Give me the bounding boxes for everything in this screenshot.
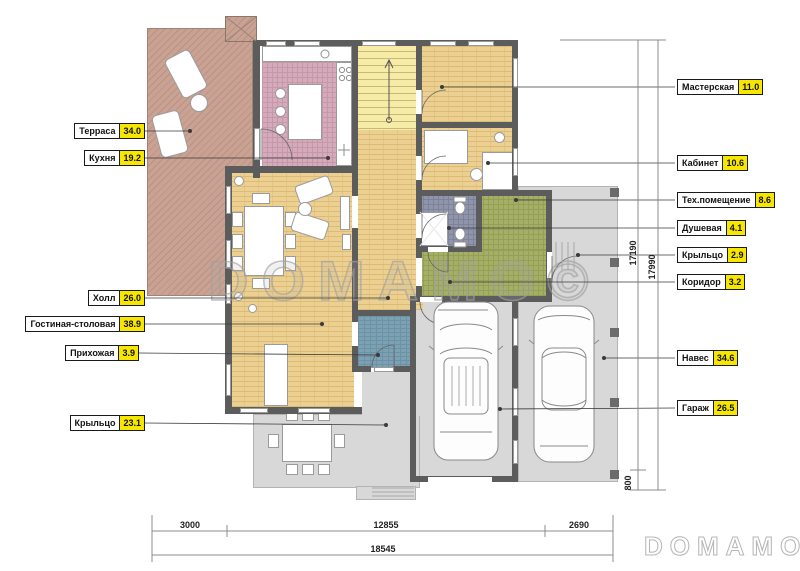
- room-label: Холл: [88, 290, 121, 306]
- toilet: [454, 197, 466, 247]
- callout-workshop: Мастерская11.0: [677, 79, 763, 95]
- area-value: 4.1: [727, 220, 747, 236]
- room-label: Крыльцо: [677, 247, 728, 263]
- callout-study: Кабинет10.6: [677, 155, 748, 171]
- room-label: Коридор: [677, 274, 726, 290]
- dim-18545: 18545: [370, 544, 395, 554]
- domamo-logo: DOMAMO: [644, 531, 800, 562]
- dim-2690: 2690: [569, 520, 589, 530]
- callout-terrace: Терраса34.0: [74, 123, 145, 139]
- door-arcs: [261, 90, 578, 367]
- callout-garage: Гараж26.5: [677, 400, 738, 416]
- callout-shower: Душевая4.1: [677, 220, 746, 236]
- room-label: Мастерская: [677, 79, 739, 95]
- room-label: Терраса: [74, 123, 120, 139]
- room-label: Кабинет: [677, 155, 723, 171]
- area-value: 26.0: [120, 290, 145, 306]
- suv-car: [429, 302, 503, 460]
- room-label: Кухня: [84, 150, 120, 166]
- dim-3000: 3000: [180, 520, 200, 530]
- area-value: 10.6: [723, 155, 748, 171]
- room-label: Душевая: [677, 220, 727, 236]
- callout-entry: Прихожая3.9: [65, 345, 139, 361]
- dim-800: 800: [623, 463, 633, 503]
- dim-12855: 12855: [373, 520, 398, 530]
- callout-porch-main: Крыльцо23.1: [70, 415, 146, 431]
- leader-lines: [139, 85, 675, 426]
- dimension-lines: [152, 40, 666, 562]
- floor-plan-image: DOMAMO©: [0, 0, 800, 571]
- area-value: 38.9: [120, 316, 145, 332]
- callout-hall: Холл26.0: [88, 290, 145, 306]
- sedan-car: [529, 306, 599, 462]
- dim-17190: 17190: [628, 233, 638, 273]
- area-value: 3.9: [119, 345, 139, 361]
- area-value: 3.2: [726, 274, 746, 290]
- kitchen-fixtures: [321, 50, 352, 156]
- stairs-direction-arrow: [385, 60, 393, 123]
- dim-17990: 17990: [647, 247, 657, 287]
- callout-living-dining: Гостиная-столовая38.9: [25, 316, 145, 332]
- area-value: 8.6: [756, 192, 776, 208]
- callout-corridor: Коридор3.2: [677, 274, 745, 290]
- callout-tech-room: Тех.помещение8.6: [677, 192, 775, 208]
- room-label: Гостиная-столовая: [25, 316, 120, 332]
- area-value: 19.2: [120, 150, 145, 166]
- room-label: Крыльцо: [70, 415, 121, 431]
- callout-canopy: Навес34.6: [677, 350, 738, 366]
- callout-porch-small: Крыльцо2.9: [677, 247, 747, 263]
- area-value: 34.6: [714, 350, 739, 366]
- room-label: Прихожая: [65, 345, 119, 361]
- room-label: Навес: [677, 350, 714, 366]
- area-value: 34.0: [120, 123, 145, 139]
- area-value: 26.5: [714, 400, 739, 416]
- area-value: 23.1: [120, 415, 145, 431]
- room-label: Гараж: [677, 400, 714, 416]
- area-value: 2.9: [728, 247, 748, 263]
- callout-kitchen: Кухня19.2: [84, 150, 145, 166]
- room-label: Тех.помещение: [677, 192, 756, 208]
- area-value: 11.0: [739, 79, 763, 95]
